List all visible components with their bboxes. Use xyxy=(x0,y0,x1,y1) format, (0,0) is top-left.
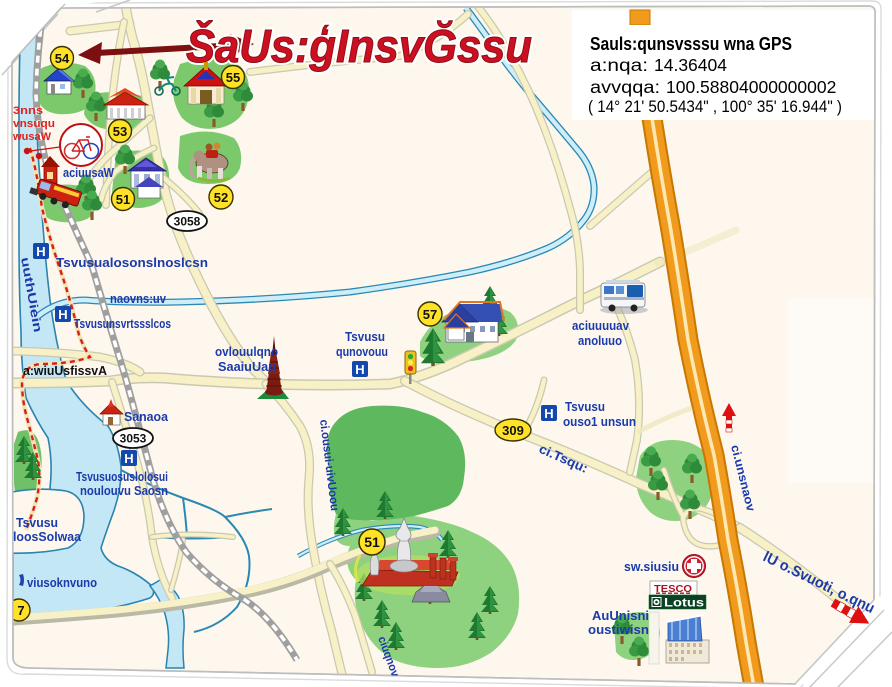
svg-text:oustiwisn: oustiwisn xyxy=(588,623,649,637)
svg-text:Tsvusu: Tsvusu xyxy=(565,399,605,414)
svg-text:sw.siusiu: sw.siusiu xyxy=(624,560,679,574)
svg-text:51: 51 xyxy=(116,192,130,207)
svg-text:Tsvusu: Tsvusu xyxy=(345,329,385,344)
svg-text:AuUnisni: AuUnisni xyxy=(592,609,649,623)
svg-text:( 14° 21' 50.5434" , 100° 35': ( 14° 21' 50.5434" , 100° 35' 16.944" ) xyxy=(588,98,842,116)
svg-text:51: 51 xyxy=(364,534,380,550)
svg-text:52: 52 xyxy=(214,190,228,205)
svg-text:loosSolwaa: loosSolwaa xyxy=(13,529,82,544)
svg-text:naovns:uv: naovns:uv xyxy=(110,292,166,306)
svg-text:aciuusaW: aciuusaW xyxy=(63,166,114,180)
svg-text:vnsuqu: vnsuqu xyxy=(13,118,55,130)
svg-text:H: H xyxy=(36,244,45,259)
svg-text:Tsvusu: Tsvusu xyxy=(16,515,58,530)
svg-text:Tsvusualosonslnoslcsn: Tsvusualosonslnoslcsn xyxy=(56,255,208,270)
svg-text:a:nqa:14.36404: a:nqa:14.36404 xyxy=(590,55,727,75)
svg-text:Lotus: Lotus xyxy=(664,596,704,610)
svg-text:Tsvusunsvrtssslcos: Tsvusunsvrtssslcos xyxy=(74,316,171,331)
svg-text:ovlouulqno: ovlouulqno xyxy=(215,345,278,359)
svg-text:Sanaoa: Sanaoa xyxy=(124,410,169,424)
svg-text:noulouvu Saosn: noulouvu Saosn xyxy=(80,483,168,498)
svg-text:309: 309 xyxy=(502,423,524,438)
svg-text:qunovouu: qunovouu xyxy=(336,344,388,359)
svg-text:aciuuuuav: aciuuuuav xyxy=(572,318,630,333)
svg-text:H: H xyxy=(124,451,133,466)
svg-text:Tsvusuosuslolosui: Tsvusuosuslolosui xyxy=(76,469,168,484)
svg-text:anoluuo: anoluuo xyxy=(578,333,622,348)
svg-text:55: 55 xyxy=(226,70,240,85)
svg-text:SaaiuUau: SaaiuUau xyxy=(218,360,276,374)
svg-text:7: 7 xyxy=(17,603,24,618)
svg-text:ŠaUs:ģInsvĞssu: ŠaUs:ģInsvĞssu xyxy=(186,20,532,72)
svg-text:viusoknvuno: viusoknvuno xyxy=(27,576,97,590)
svg-text:Sauls:qunsvsssu wna GPS: Sauls:qunsvsssu wna GPS xyxy=(590,34,792,54)
svg-text:54: 54 xyxy=(55,51,70,66)
svg-text:3053: 3053 xyxy=(120,432,147,446)
svg-text:a:wiuUsfissvA: a:wiuUsfissvA xyxy=(23,364,107,378)
svg-text:3058: 3058 xyxy=(174,215,201,229)
svg-text:avvqqa:100.58804000000002: avvqqa:100.58804000000002 xyxy=(590,77,836,97)
svg-text:57: 57 xyxy=(423,307,437,322)
svg-text:H: H xyxy=(355,362,364,377)
svg-text:53: 53 xyxy=(113,124,127,139)
svg-text:wusaW: wusaW xyxy=(12,131,52,143)
svg-text:H: H xyxy=(544,406,553,421)
svg-text:3nns: 3nns xyxy=(13,105,43,117)
svg-text:ouso1 unsun: ouso1 unsun xyxy=(563,414,636,429)
svg-text:H: H xyxy=(58,307,67,322)
